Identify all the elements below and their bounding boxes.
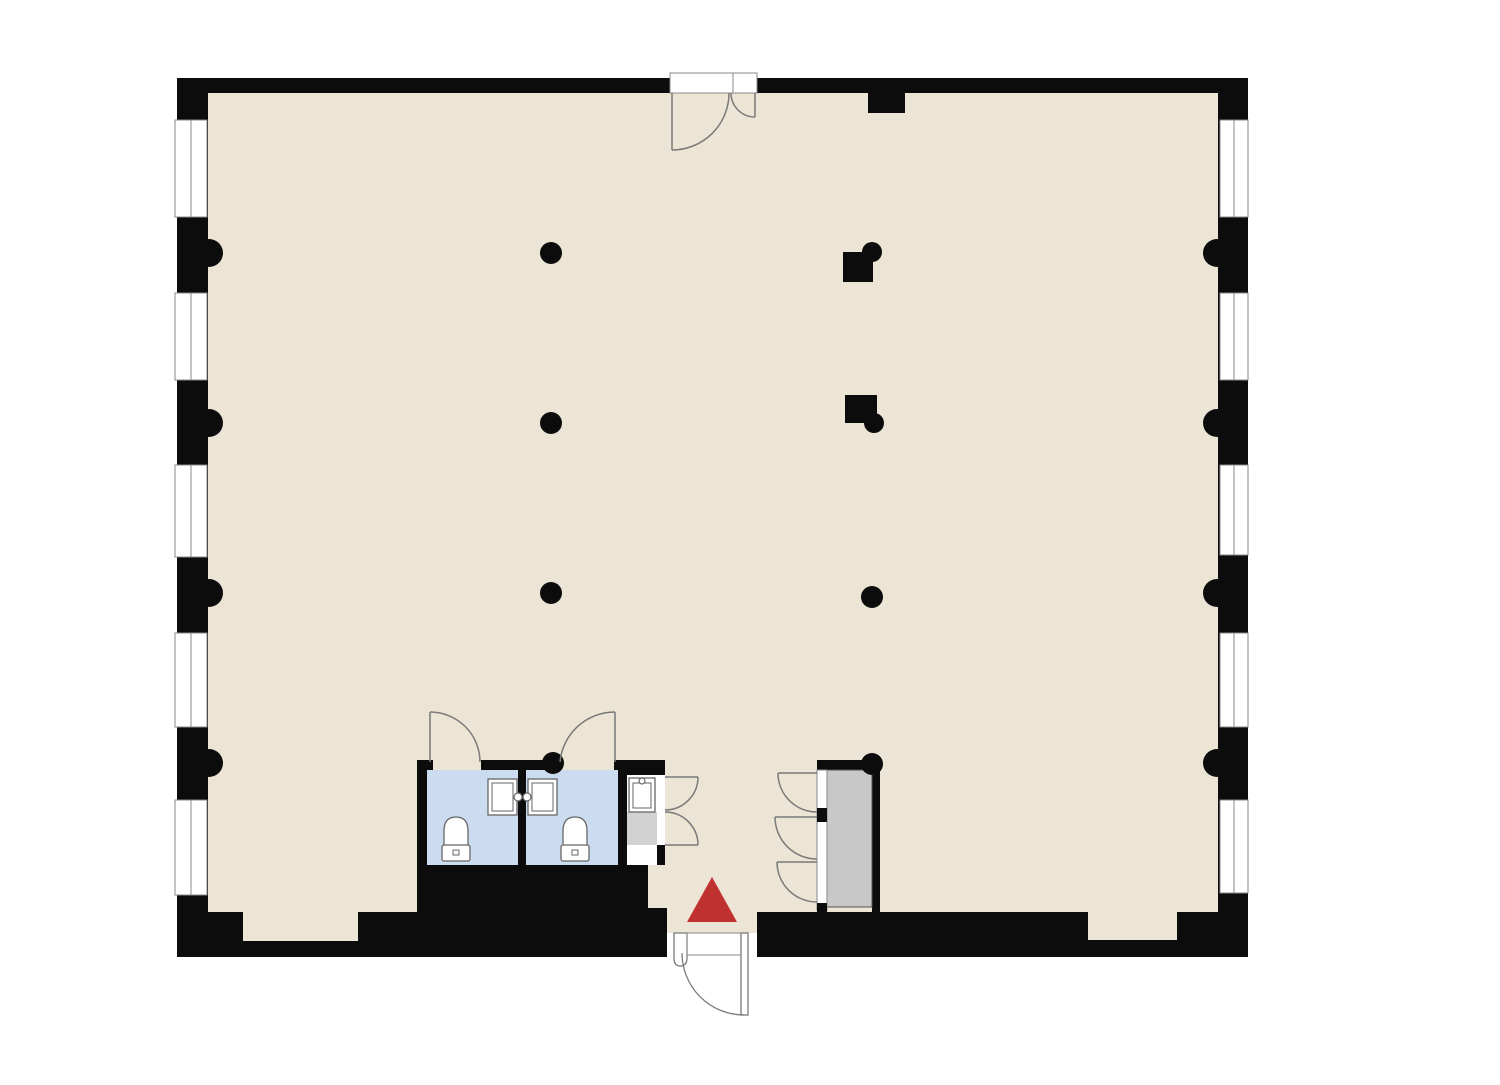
wc-block-mid-wall — [518, 770, 526, 865]
entrance-jamb — [674, 933, 687, 966]
closet-right-wall — [872, 765, 880, 912]
column-3 — [540, 582, 562, 604]
wc-block-service-mass-2 — [648, 908, 667, 933]
sink-right-faucet — [523, 793, 531, 801]
wall-pilaster-right-1 — [1203, 239, 1231, 267]
toilet-left-button — [453, 850, 459, 855]
column-2 — [540, 412, 562, 434]
wc-block-left-wall — [417, 760, 427, 865]
closet-hinge-block-1 — [817, 808, 827, 822]
floor-plan-page — [0, 0, 1500, 1085]
top-door-frame — [670, 73, 757, 93]
closet-hinge-block-2 — [817, 903, 827, 912]
wall-pilaster-left-3 — [195, 579, 223, 607]
column-4 — [861, 586, 883, 608]
sink-left-basin — [492, 783, 513, 811]
utility-door-opening — [657, 775, 665, 845]
wall-pilaster-left-2 — [195, 409, 223, 437]
wall-pilaster-left-1 — [195, 239, 223, 267]
wc-block-wall-3 — [627, 770, 665, 775]
sink-utility-basin — [633, 783, 651, 808]
closet-body — [827, 770, 872, 907]
wall-pilaster-left-4 — [195, 749, 223, 777]
wall-pilaster-right-2 — [1203, 409, 1231, 437]
entrance-door-leaf — [741, 933, 748, 1015]
sink-utility-faucet — [639, 778, 645, 784]
wall-pilaster-right-4 — [1203, 749, 1231, 777]
wc-block-service-mass — [417, 865, 648, 957]
column-duct-b-column — [864, 413, 884, 433]
sink-right-basin — [532, 783, 553, 811]
column-6 — [861, 753, 883, 775]
sink-left-faucet — [514, 793, 522, 801]
wc-block-wall-4 — [657, 845, 665, 865]
closet-door-track — [817, 770, 827, 910]
toilet-right-bowl — [563, 817, 587, 849]
toilet-left-bowl — [444, 817, 468, 849]
toilet-right-button — [572, 850, 578, 855]
column-1 — [540, 242, 562, 264]
utility-room-mat — [627, 812, 657, 845]
top-wall-pier — [868, 93, 905, 113]
main-floor — [208, 93, 1218, 941]
wc-door-opening-right — [560, 760, 614, 770]
entrance-door-swing — [682, 953, 744, 1015]
floor-plan — [0, 0, 1500, 1085]
column-duct-a-column — [862, 242, 882, 262]
wc-door-opening-left — [433, 760, 481, 770]
wc-block-wall-2 — [618, 760, 627, 865]
wall-pilaster-right-3 — [1203, 579, 1231, 607]
